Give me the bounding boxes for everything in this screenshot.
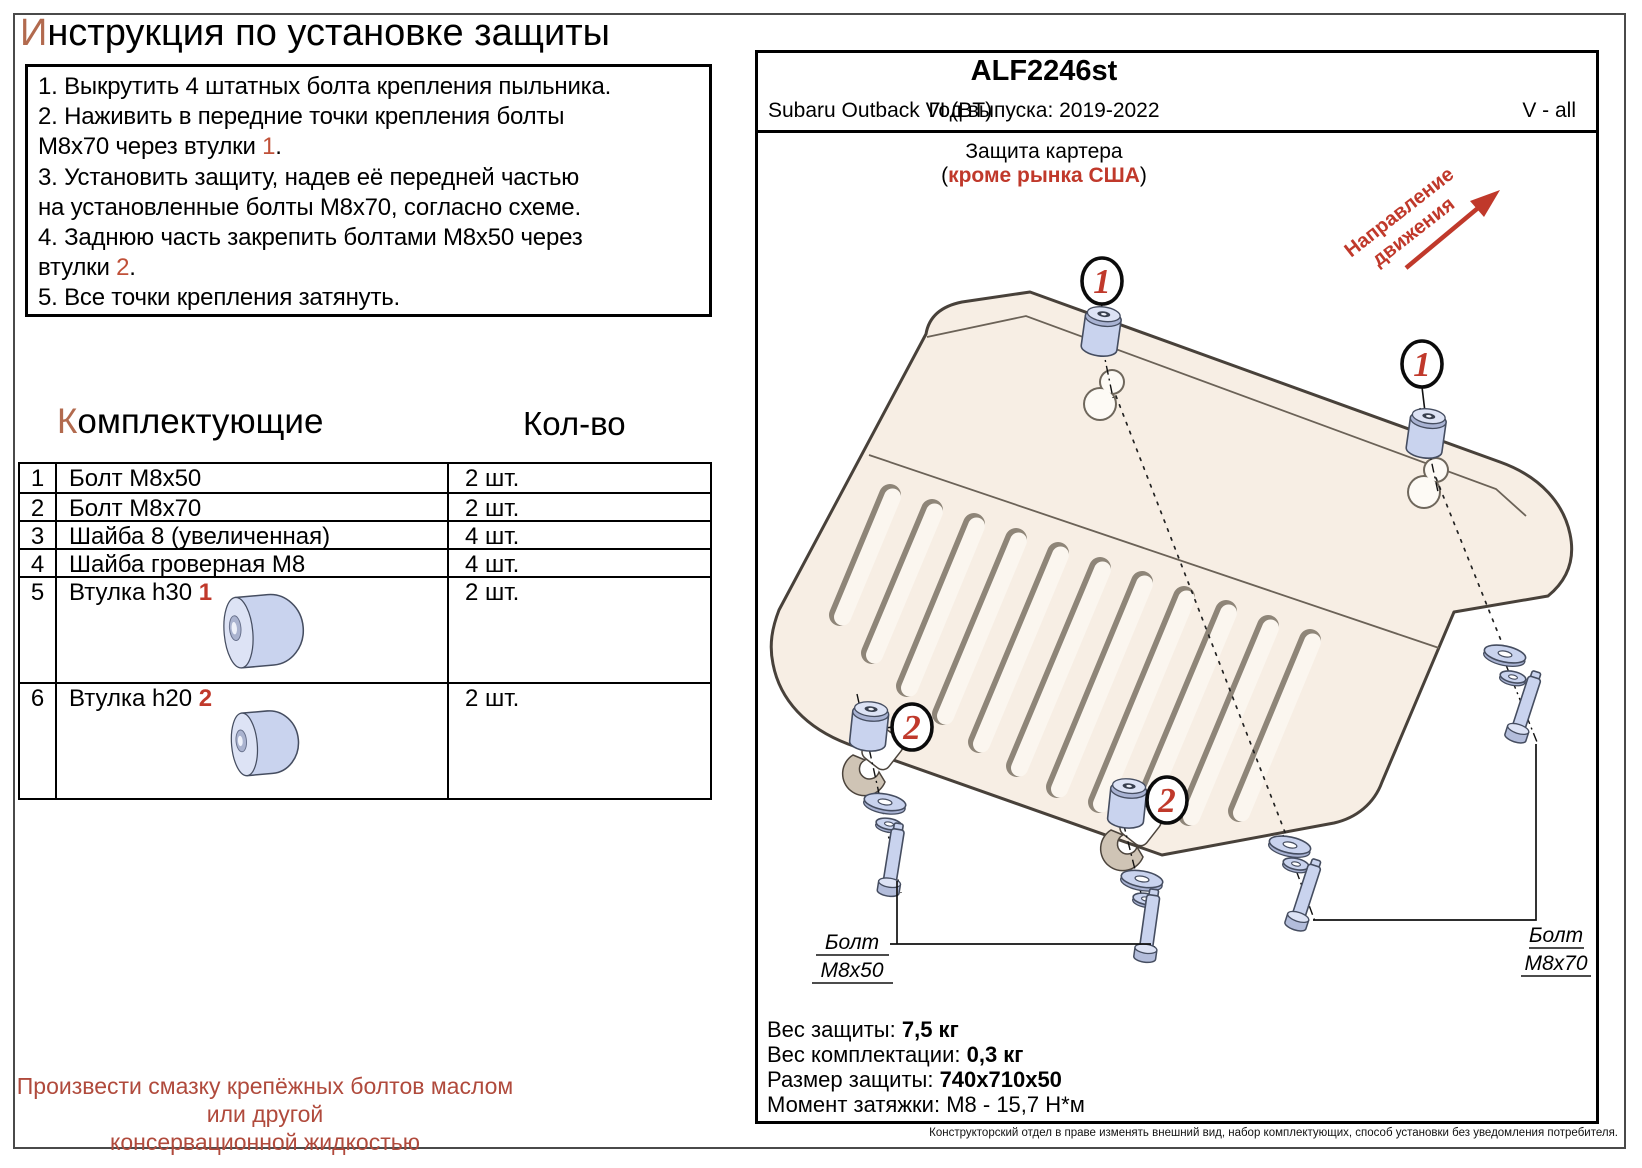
specs-block: Вес защиты: 7,5 кгВес комплектации: 0,3 … — [767, 1017, 1085, 1117]
svg-text:Болт: Болт — [825, 931, 879, 954]
spec-row: Вес защиты: 7,5 кг — [767, 1017, 1085, 1042]
bushing-graphic — [1107, 777, 1148, 830]
instruction-item: 1. Выкрутить 4 штатных болта крепления п… — [38, 72, 699, 102]
spec-row: Момент затяжки: М8 - 15,7 Н*м — [767, 1092, 1085, 1117]
bushing-h30-image — [205, 586, 310, 676]
table-row: 6Втулка h20 2 2 шт. — [20, 682, 710, 798]
callout-1: 1 — [1082, 258, 1122, 304]
instruction-item: 2. Наживить в передние точки крепления б… — [38, 102, 699, 132]
callout-2: 2 — [1147, 777, 1187, 823]
bushing-h20-image — [213, 702, 308, 784]
svg-text:2: 2 — [1157, 781, 1176, 820]
components-table: 1Болт М8х502 шт.2Болт М8х702 шт.3Шайба 8… — [18, 462, 712, 800]
quantity-heading: Кол-во — [523, 405, 626, 443]
skid-plate-diagram: Болт М8х50 Болт М8х70 1122 Направление д… — [755, 50, 1599, 1124]
spec-row: Размер защиты: 740х710х50 — [767, 1067, 1085, 1092]
svg-text:1: 1 — [1413, 345, 1431, 384]
table-row: 4Шайба гроверная М84 шт. — [20, 548, 710, 576]
table-row: 3Шайба 8 (увеличенная)4 шт. — [20, 520, 710, 548]
table-row: 2Болт М8х702 шт. — [20, 492, 710, 520]
washer-graphic — [1482, 642, 1527, 670]
components-heading: Комплектующие — [57, 402, 323, 442]
washer-graphic — [1267, 833, 1312, 861]
bolt-label-m8x50: Болт М8х50 — [812, 931, 893, 983]
svg-text:Болт: Болт — [1529, 924, 1583, 947]
table-row: 5Втулка h30 1 2 шт. — [20, 576, 710, 682]
direction-of-travel-label: Направление движения — [1341, 163, 1473, 281]
instruction-item: 5. Все точки крепления затянуть. — [38, 283, 699, 313]
instruction-item: втулки 2. — [38, 253, 699, 283]
disclaimer: Конструкторский отдел в праве изменять в… — [929, 1127, 1618, 1139]
instruction-item: 4. Заднюю часть закрепить болтами М8х50 … — [38, 223, 699, 253]
page-title: Инструкция по установке защиты — [20, 12, 610, 55]
svg-text:1: 1 — [1093, 262, 1111, 301]
bolt-graphic — [877, 822, 910, 898]
installation-instructions: 1. Выкрутить 4 штатных болта крепления п… — [25, 64, 712, 317]
svg-text:2: 2 — [902, 708, 921, 747]
callout-1: 1 — [1402, 341, 1442, 387]
instruction-item: М8х70 через втулки 1. — [38, 132, 699, 162]
svg-text:М8х50: М8х50 — [820, 959, 883, 982]
instruction-item: 3. Установить защиту, надев её передней … — [38, 163, 699, 193]
bushing-graphic — [1080, 305, 1122, 359]
drawing-panel: ALF2246st Subaru Outback VI (BT) Год вып… — [755, 50, 1599, 1124]
lubrication-note: Произвести смазку крепёжных болтов масло… — [0, 1072, 530, 1156]
instruction-item: на установленные болты М8х70, согласно с… — [38, 193, 699, 223]
title-first-letter: И — [20, 12, 47, 54]
callout-2: 2 — [892, 704, 932, 750]
spec-row: Вес комплектации: 0,3 кг — [767, 1042, 1085, 1067]
washer-graphic — [862, 790, 907, 816]
table-row: 1Болт М8х502 шт. — [20, 464, 710, 492]
bushing-graphic — [1405, 407, 1447, 461]
bushing-graphic — [849, 700, 890, 753]
svg-text:М8х70: М8х70 — [1524, 952, 1587, 975]
bolt-label-m8x70: Болт М8х70 — [1521, 924, 1591, 976]
spring-washer-graphic — [1499, 669, 1527, 688]
